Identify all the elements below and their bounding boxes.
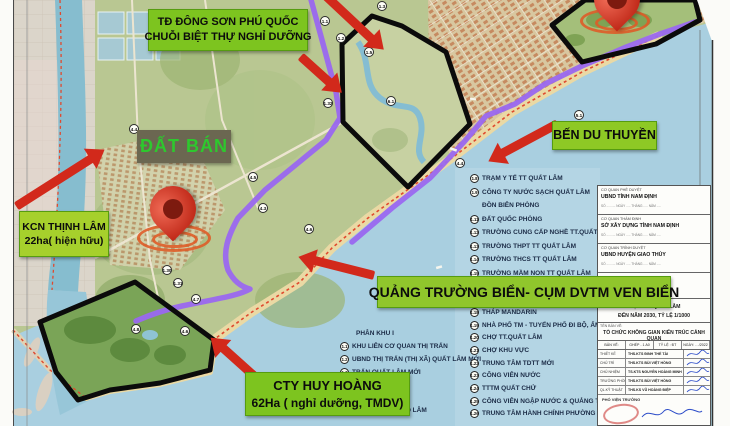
staff-role: THIẾT KẾ	[598, 350, 626, 358]
signature-cell	[684, 350, 710, 358]
approval-note: SỐ .......... NGÀY ..... THÁNG ..... NĂM…	[601, 204, 707, 208]
map-marker: 4.4	[455, 158, 465, 168]
banner-line: 22ha( hiện hữu)	[25, 234, 104, 248]
legend-item: 1.21 CHỢ KHU VỰC	[470, 344, 598, 357]
legend-item-label: CHỢ TT.QUẤT LÂM	[482, 334, 542, 341]
legend-item-number: 1.14	[470, 255, 479, 264]
approval-role: CƠ QUAN PHÊ DUYỆT	[601, 188, 707, 192]
legend-item-number: 1.2	[340, 355, 349, 364]
staff-name: THS.KS VŨ HOÀNG ĐIỆP	[626, 386, 684, 394]
sheet-header-cell: NGÀY: …/2022	[682, 341, 710, 349]
footer-role: PHÓ VIỆN TRƯỞNG	[602, 397, 640, 402]
map-marker: 1.31	[173, 278, 183, 288]
legend-item-label: CÔNG VIÊN NGẬP NƯỚC & QUẢNG T	[482, 398, 599, 405]
sheet-header-cell: BẢN VẼ:	[598, 341, 626, 349]
drawing-title-label: TÊN BẢN VẼ:	[600, 324, 708, 328]
banner-line: CTY HUY HOÀNG	[273, 377, 382, 395]
signature-cell	[684, 377, 710, 385]
legend-item-label: TRUNG TÂM HÀNH CHÍNH PHƯỜNG	[482, 410, 596, 417]
legend-item-label: TRẠM Y TẾ TT QUẤT LÂM	[482, 175, 563, 182]
legend-panel-right-upper: 1.8 TRẠM Y TẾ TT QUẤT LÂM 1.9 CÔNG TY NƯ…	[470, 172, 598, 280]
legend-item-label: ĐẤT QUỐC PHÒNG	[482, 216, 542, 223]
legend-item: 1.19 NHÀ PHỐ TM - TUYẾN PHỐ ĐI BỘ, ẨM	[470, 319, 598, 332]
staff-row: QL.KỸ THUẬT THS.KS VŨ HOÀNG ĐIỆP	[598, 386, 710, 395]
legend-item: 1.2 UBND THỊ TRẤN (THỊ XÃ) QUẤT LÂM MỚI	[340, 353, 475, 366]
map-marker: 4.7	[191, 294, 201, 304]
legend-item-label: CÔNG VIÊN NƯỚC	[482, 372, 541, 379]
scanned-planning-map-sheet: 1.1 1.2 1.3 1.5 1.32 6.1 4.5 4.3 4.6 4.4…	[0, 0, 730, 426]
banner-line: 62Ha ( nghỉ dưỡng, TMDV)	[252, 395, 404, 411]
legend-item: 1.20 CHỢ TT.QUẤT LÂM	[470, 331, 598, 344]
map-marker: 4.8	[131, 324, 141, 334]
signature-icon	[686, 377, 710, 385]
legend-item: 1.23 CÔNG VIÊN NƯỚC	[470, 369, 598, 382]
banner-line: QUẢNG TRƯỜNG BIỂN- CỤM DVTM VEN BIỂN	[369, 283, 680, 302]
staff-row: THIẾT KẾ THS.KTS ĐINH THẾ TÀI	[598, 350, 710, 359]
legend-item-label: TRUNG TÂM TDTT MỚI	[482, 360, 554, 367]
legend-item: 1.8 TRẠM Y TẾ TT QUẤT LÂM	[470, 172, 598, 186]
legend-list: 1.18 THÁP MANDARIN 1.19 NHÀ PHỐ TM - TUY…	[470, 306, 598, 420]
legend-item-label: TRƯỜNG THPT TT QUẤT LÂM	[482, 243, 576, 250]
legend-item-label: TRƯỜNG THCS TT QUẤT LÂM	[482, 256, 577, 263]
legend-item-label: CHỢ KHU VỰC	[482, 347, 529, 354]
sheet-header-cell: TỶ LỆ : ĐT	[654, 341, 682, 349]
red-stamp-icon	[602, 402, 640, 426]
signature-cell	[684, 359, 710, 367]
staff-role: QL.KỸ THUẬT	[598, 386, 626, 394]
staff-role: CHỦ NHIỆM	[598, 368, 626, 376]
legend-item-label: TRƯỜNG CUNG CẤP NGHỀ TT.QUẤT	[482, 229, 598, 236]
legend-item: 1.26 TRUNG TÂM HÀNH CHÍNH PHƯỜNG	[470, 408, 598, 421]
legend-item: 1.13 TRƯỜNG THPT TT QUẤT LÂM	[470, 240, 598, 254]
legend-item-number: 1.22	[470, 359, 479, 368]
approval-boxes: CƠ QUAN PHÊ DUYỆT UBND TỈNH NAM ĐỊNH SỐ …	[598, 186, 710, 273]
signature-cell	[684, 368, 710, 376]
approval-role: CƠ QUAN TRÌNH DUYỆT	[601, 246, 707, 250]
approval-box: CƠ QUAN THẨM ĐỊNH SỞ XÂY DỰNG TỈNH NAM Đ…	[598, 215, 710, 244]
legend-item-label: THÁP MANDARIN	[482, 309, 537, 316]
legend-item: ĐỒN BIÊN PHÒNG	[470, 199, 598, 213]
banner-line: BẾN DU THUYỀN	[553, 127, 656, 144]
banner-dong-son-phu-quoc: TĐ ĐÔNG SƠN PHÚ QUỐC CHUỖI BIỆT THỰ NGHỈ…	[148, 9, 308, 51]
legend-item-number: 1.11	[470, 215, 479, 224]
legend-item-number: 1.12	[470, 228, 479, 237]
legend-item-label: CÔNG TY NƯỚC SẠCH QUẤT LÂM	[482, 189, 590, 196]
staff-role: TRƯỞNG PHÒNG	[598, 377, 626, 385]
sheet-header-cell: GHÉP - 1 A0	[626, 341, 654, 349]
legend-panel-right-lower: 1.18 THÁP MANDARIN 1.19 NHÀ PHỐ TM - TUY…	[470, 306, 598, 420]
map-marker: 1.3	[377, 1, 387, 11]
map-marker: 4.3	[258, 203, 268, 213]
title-block-footer: PHÓ VIỆN TRƯỞNG	[598, 395, 710, 426]
banner-line: CHUỖI BIỆT THỰ NGHỈ DƯỠNG	[145, 30, 312, 45]
banner-ben-du-thuyen: BẾN DU THUYỀN	[552, 121, 657, 150]
legend-item-number: 1.9	[470, 188, 479, 197]
banner-line: TĐ ĐÔNG SƠN PHÚ QUỐC	[158, 15, 299, 30]
staff-row: CHỦ TRÌ THS.KTS BÙI VIỆT HỒNG	[598, 359, 710, 368]
signature-icon	[686, 368, 710, 376]
legend-item: 1.11 ĐẤT QUỐC PHÒNG	[470, 213, 598, 227]
map-marker: 1.2	[336, 33, 346, 43]
legend-item-label: ĐỒN BIÊN PHÒNG	[482, 202, 539, 209]
legend-item-number: 1.24	[470, 384, 479, 393]
approval-box: CƠ QUAN PHÊ DUYỆT UBND TỈNH NAM ĐỊNH SỐ …	[598, 186, 710, 215]
staff-name: THS.KTS ĐINH THẾ TÀI	[626, 350, 684, 358]
map-marker: 5.1	[574, 110, 584, 120]
map-marker: 4.6	[180, 326, 190, 336]
approval-agency: SỞ XÂY DỰNG TỈNH NAM ĐỊNH	[601, 223, 707, 229]
staff-name: TS.KTS NGUYỄN HOÀNG MINH	[626, 368, 684, 376]
map-marker: 4.5	[248, 172, 258, 182]
legend-item-label: KHU LIÊN CƠ QUAN THỊ TRẤN	[352, 343, 448, 350]
staff-name: THS.KTS BÙI VIỆT HỒNG	[626, 377, 684, 385]
map-marker: 4.6	[304, 224, 314, 234]
legend-item-number: 1.18	[470, 308, 479, 317]
legend-item-label: TTTM QUẤT CHỬ	[482, 385, 536, 392]
legend-item-label: UBND THỊ TRẤN (THỊ XÃ) QUẤT LÂM MỚI	[352, 356, 481, 363]
legend-item-number: 1.21	[470, 346, 479, 355]
legend-item: 1.22 TRUNG TÂM TDTT MỚI	[470, 357, 598, 370]
approval-box: CƠ QUAN TRÌNH DUYỆT UBND HUYỆN GIAO THỦY…	[598, 244, 710, 273]
legend-item: 1.12 TRƯỜNG CUNG CẤP NGHỀ TT.QUẤT	[470, 226, 598, 240]
legend-item: 1.1 KHU LIÊN CƠ QUAN THỊ TRẤN	[340, 340, 475, 353]
legend-list: 1.8 TRẠM Y TẾ TT QUẤT LÂM 1.9 CÔNG TY NƯ…	[470, 172, 598, 280]
legend-item: 1.24 TTTM QUẤT CHỬ	[470, 382, 598, 395]
signature-icon	[686, 359, 710, 367]
legend-item-number: 1.1	[340, 342, 349, 351]
approval-note: SỐ .......... NGÀY ..... THÁNG ..... NĂM…	[601, 262, 707, 266]
approval-agency: UBND HUYỆN GIAO THỦY	[601, 252, 707, 258]
approval-role: CƠ QUAN THẨM ĐỊNH	[601, 217, 707, 221]
legend-item-label: NHÀ PHỐ TM - TUYẾN PHỐ ĐI BỘ, ẨM	[482, 322, 600, 329]
banner-quang-truong-bien: QUẢNG TRƯỜNG BIỂN- CỤM DVTM VEN BIỂN	[377, 276, 671, 308]
legend-item-number: 1.13	[470, 242, 479, 251]
legend-item-number: 1.25	[470, 397, 479, 406]
drawing-title-box: TÊN BẢN VẼ: TỔ CHỨC KHÔNG GIAN KIẾN TRÚC…	[598, 323, 710, 341]
signature-cell	[684, 386, 710, 394]
map-marker: 1.30	[162, 265, 172, 275]
project-line: ĐẾN NĂM 2030, TỶ LỆ 1/1000	[598, 312, 710, 321]
staff-table: THIẾT KẾ THS.KTS ĐINH THẾ TÀI CHỦ TRÌ TH…	[598, 350, 710, 395]
legend-header: PHÂN KHU I	[356, 330, 475, 337]
signature-icon	[686, 350, 710, 358]
legend-item-number: 1.8	[470, 174, 479, 183]
staff-name: THS.KTS BÙI VIỆT HỒNG	[626, 359, 684, 367]
staff-role: CHỦ TRÌ	[598, 359, 626, 367]
map-marker: 6.1	[386, 96, 396, 106]
sheet-header-row: BẢN VẼ:GHÉP - 1 A0TỶ LỆ : ĐTNGÀY: …/2022	[598, 341, 710, 350]
legend-item-number: 1.19	[470, 321, 479, 330]
approval-agency: UBND TỈNH NAM ĐỊNH	[601, 194, 707, 200]
staff-row: CHỦ NHIỆM TS.KTS NGUYỄN HOÀNG MINH	[598, 368, 710, 377]
legend-item-number: 1.20	[470, 333, 479, 342]
legend-item: 1.25 CÔNG VIÊN NGẬP NƯỚC & QUẢNG T	[470, 395, 598, 408]
legend-item: 1.14 TRƯỜNG THCS TT QUẤT LÂM	[470, 253, 598, 267]
banner-line: ĐẤT BÁN	[140, 134, 228, 158]
approval-note: SỐ .......... NGÀY ..... THÁNG ..... NĂM…	[601, 233, 707, 237]
signature-icon	[640, 405, 704, 423]
legend-item-number: 1.26	[470, 409, 479, 418]
banner-line: KCN THỊNH LÂM	[22, 220, 105, 234]
label-dat-ban: ĐẤT BÁN	[137, 130, 231, 163]
legend-item-number: 1.23	[470, 371, 479, 380]
staff-row: TRƯỞNG PHÒNG THS.KTS BÙI VIỆT HỒNG	[598, 377, 710, 386]
banner-cty-huy-hoang: CTY HUY HOÀNG 62Ha ( nghỉ dưỡng, TMDV)	[245, 372, 410, 416]
banner-kcn-thinh-lam: KCN THỊNH LÂM 22ha( hiện hữu)	[19, 211, 109, 257]
signature-icon	[686, 386, 710, 394]
map-marker: 1.1	[320, 16, 330, 26]
legend-item: 1.9 CÔNG TY NƯỚC SẠCH QUẤT LÂM	[470, 186, 598, 200]
